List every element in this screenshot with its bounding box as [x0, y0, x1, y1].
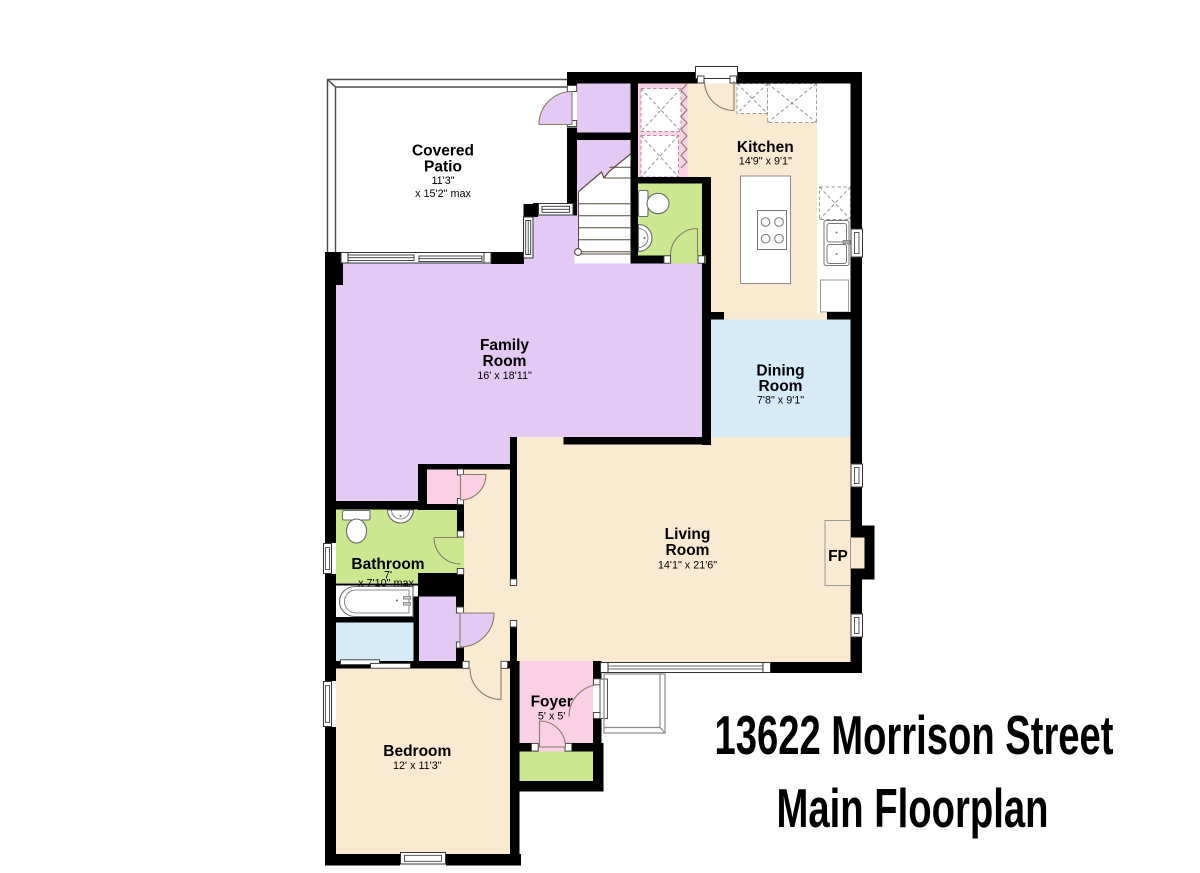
svg-text:Room: Room	[483, 353, 527, 370]
svg-text:Family: Family	[480, 337, 529, 354]
svg-text:14'9" x 9'1": 14'9" x 9'1"	[739, 156, 792, 168]
svg-text:Bedroom: Bedroom	[383, 743, 451, 760]
svg-text:11'3": 11'3"	[431, 175, 454, 187]
svg-text:Kitchen: Kitchen	[737, 139, 794, 156]
svg-text:x 15'2" max: x 15'2" max	[415, 188, 471, 200]
svg-text:7'8" x 9'1": 7'8" x 9'1"	[757, 395, 804, 407]
svg-text:Main Floorplan: Main Floorplan	[777, 777, 1049, 839]
svg-text:Room: Room	[759, 378, 803, 395]
svg-text:13622 Morrison Street: 13622 Morrison Street	[715, 704, 1114, 766]
svg-text:FP: FP	[828, 548, 848, 565]
svg-text:Covered: Covered	[412, 143, 474, 160]
svg-text:12' x 11'3": 12' x 11'3"	[393, 760, 442, 772]
svg-text:5' x 5': 5' x 5'	[538, 711, 566, 723]
svg-text:x 7'10" max: x 7'10" max	[358, 578, 414, 590]
svg-text:Room: Room	[666, 542, 710, 559]
svg-text:Living: Living	[665, 526, 711, 543]
svg-text:Dining: Dining	[756, 363, 804, 380]
svg-text:16' x 18'11": 16' x 18'11"	[477, 370, 532, 382]
svg-text:Foyer: Foyer	[531, 694, 573, 711]
svg-text:Patio: Patio	[424, 159, 462, 176]
svg-text:14'1" x 21'6": 14'1" x 21'6"	[658, 560, 717, 572]
